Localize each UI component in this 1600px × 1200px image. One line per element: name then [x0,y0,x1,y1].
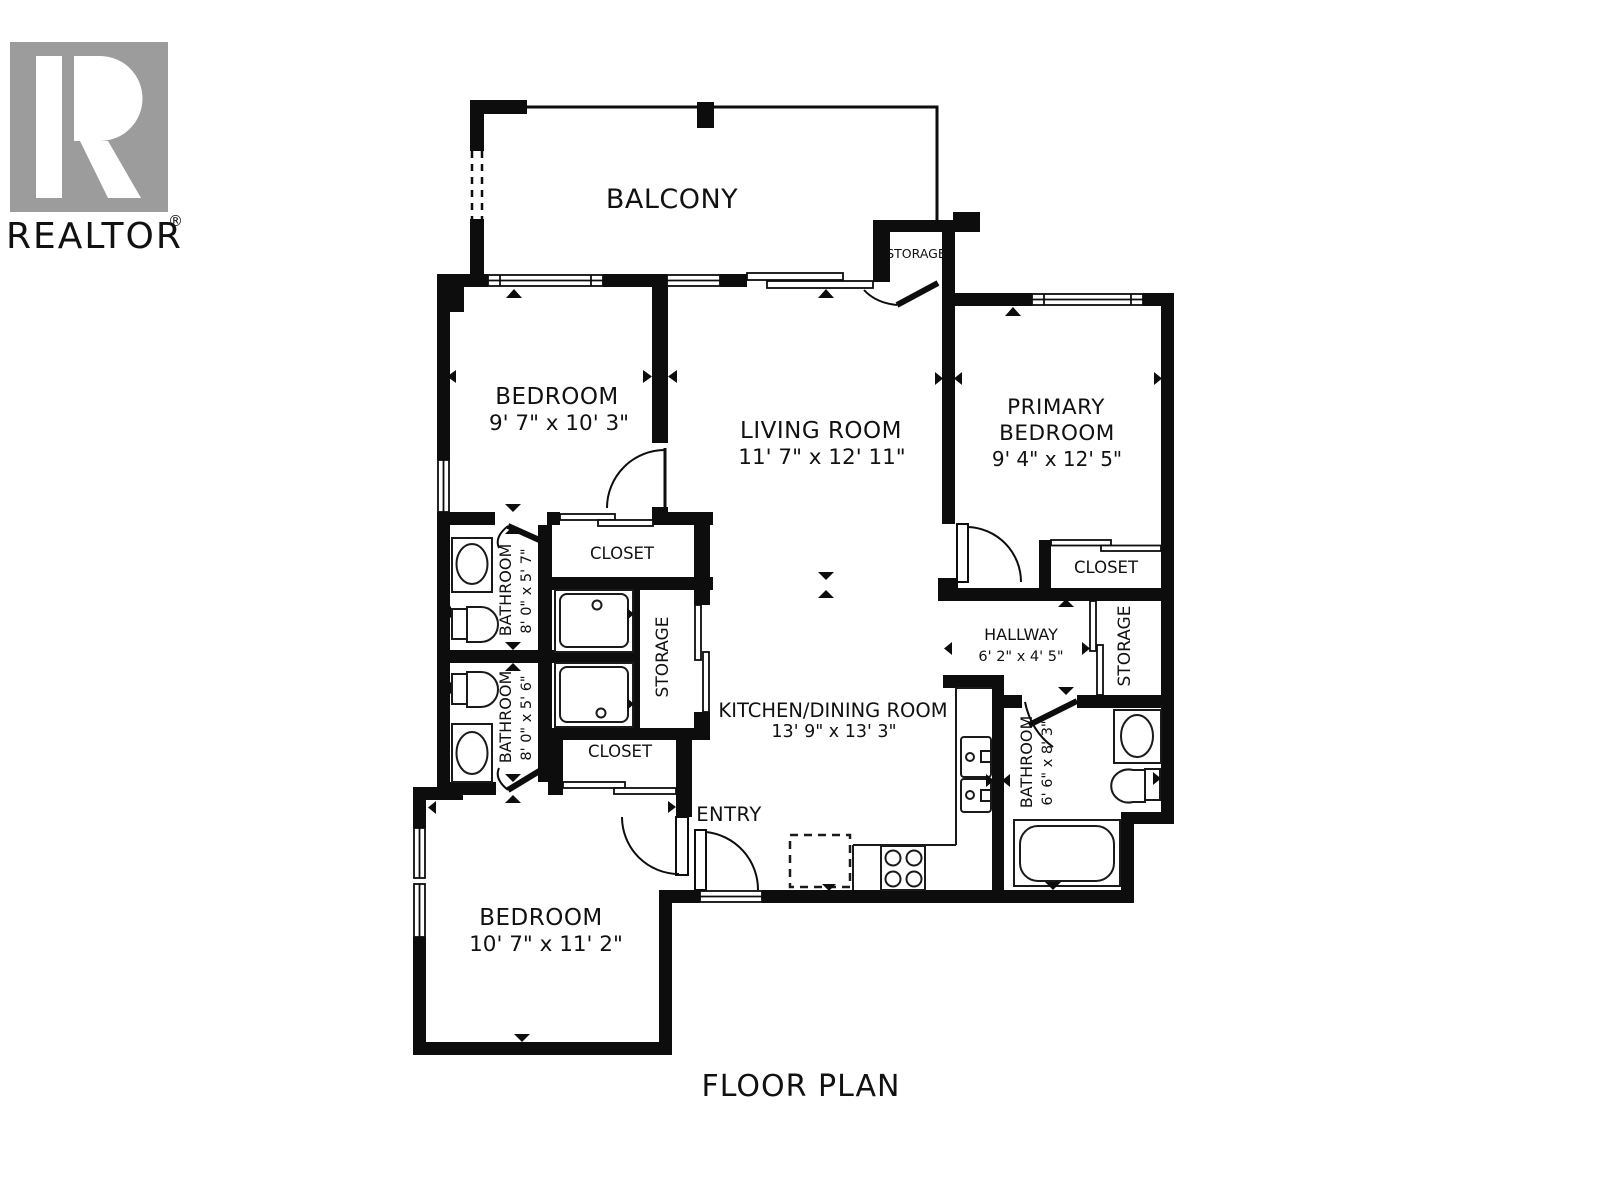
room-dims-bedroom-bottom: 10' 7" x 11' 2" [469,932,623,957]
realtor-logo: REALTOR ® [6,42,183,257]
room-label-entry: ENTRY [696,803,762,826]
room-label-living-room: LIVING ROOM [740,418,902,444]
room-dims-bathroom-right: 6' 6" x 8' 3" [1040,720,1056,805]
room-dims-living-room: 11' 7" x 12' 11" [738,445,905,470]
room-label-storage-balcony: STORAGE [886,246,946,261]
room-label-balcony: BALCONY [606,184,738,215]
logo-wordmark: REALTOR [6,216,183,257]
room-label-hallway: HALLWAY [984,625,1058,644]
room-label-closet-top: CLOSET [590,544,655,563]
bathroom2-toilet-bowl [467,672,498,707]
bathroom1-toilet-bowl [467,607,498,642]
bathroom3-toilet-tank [1145,769,1160,800]
balcony-screen [470,151,484,219]
bathroom2-sink [457,732,488,774]
room-dims-kitchen: 13' 9" x 13' 3" [771,722,896,742]
room-label-closet-primary: CLOSET [1074,558,1139,577]
room-label-primary-line2: BEDROOM [999,421,1115,446]
appliance-dashed-box [790,835,850,887]
room-dims-hallway: 6' 2" x 4' 5" [978,649,1063,665]
room-label-bathroom-right: BATHROOM [1017,716,1036,809]
floor-plan-page: REALTOR ® [0,0,1600,1200]
room-label-kitchen: KITCHEN/DINING ROOM [718,699,947,722]
logo-r-stem [36,56,62,198]
logo-registered-mark: ® [168,212,183,230]
room-label-bathroom-mid: BATHROOM [496,671,515,764]
room-label-bedroom-top: BEDROOM [495,384,619,410]
room-dims-bathroom-top: 8' 0" x 5' 7" [519,548,535,633]
bathroom3-sink [1121,715,1153,757]
room-label-bedroom-bottom: BEDROOM [479,905,603,931]
room-label-storage-left: STORAGE [653,617,673,698]
floor-plan-drawing: REALTOR ® [0,0,1600,1200]
bathroom1-sink [457,544,488,584]
room-dims-bedroom-top: 9' 7" x 10' 3" [489,411,629,436]
page-title: FLOOR PLAN [702,1069,901,1104]
room-label-closet-bottom: CLOSET [588,742,653,761]
bathroom2-toilet-tank [452,674,467,704]
room-label-primary-line1: PRIMARY [1007,395,1105,420]
room-dims-bathroom-mid: 8' 0" x 5' 6" [519,675,535,760]
room-dims-primary: 9' 4" x 12' 5" [992,447,1122,471]
bathroom3-toilet-bowl [1111,770,1145,803]
room-label-storage-hallway: STORAGE [1115,606,1135,687]
bathroom1-toilet-tank [452,609,467,639]
room-label-bathroom-top: BATHROOM [496,544,515,637]
